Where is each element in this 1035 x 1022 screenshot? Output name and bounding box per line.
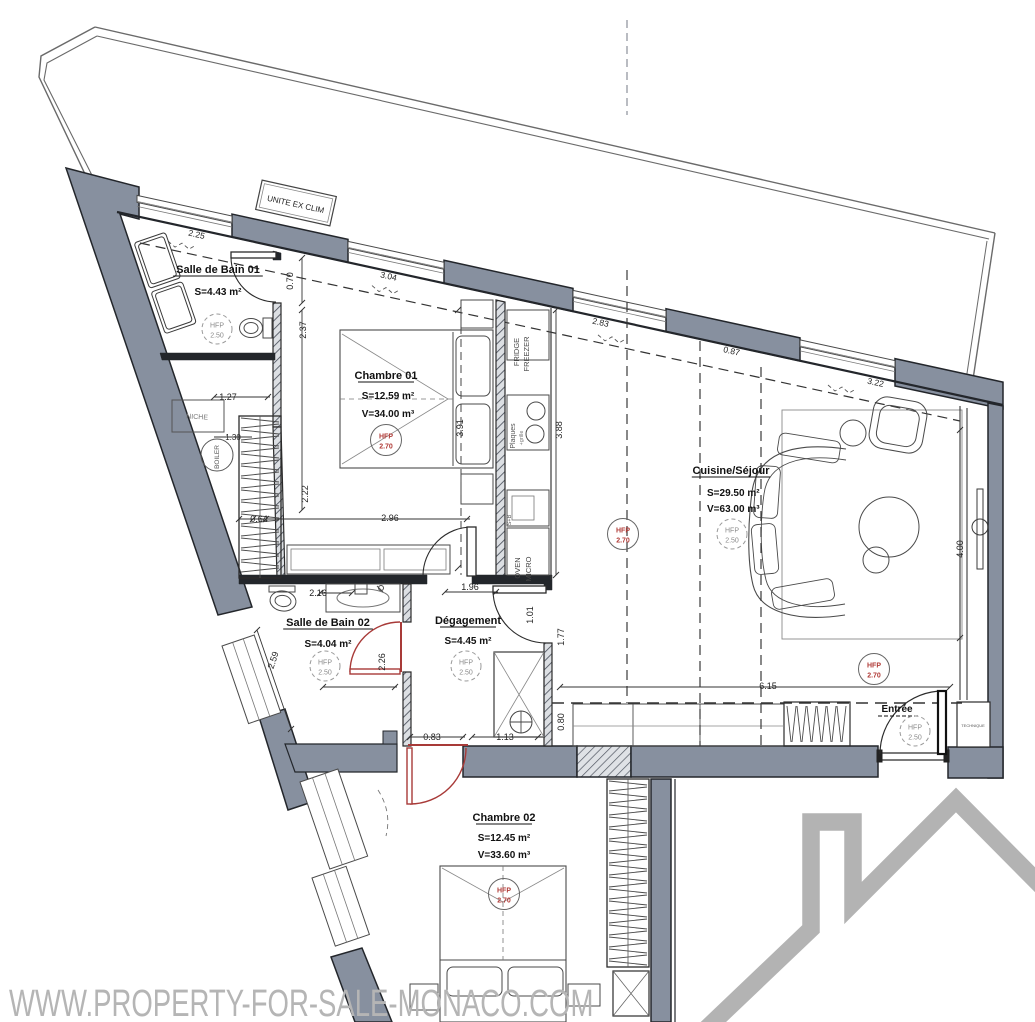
svg-text:2.70: 2.70	[497, 898, 511, 905]
svg-text:S=4.43 m²: S=4.43 m²	[195, 287, 243, 298]
svg-text:HFP: HFP	[908, 725, 922, 732]
svg-text:V=34.00 m³: V=34.00 m³	[362, 409, 415, 420]
svg-text:S=12.45 m²: S=12.45 m²	[478, 833, 531, 844]
svg-text:WWW.PROPERTY-FOR-SALE-MONACO.C: WWW.PROPERTY-FOR-SALE-MONACO.COM	[9, 983, 593, 1022]
svg-text:1.96: 1.96	[461, 582, 479, 592]
svg-text:Chambre 01: Chambre 01	[355, 370, 418, 382]
svg-text:Cuisine/Séjour: Cuisine/Séjour	[692, 465, 770, 477]
svg-text:OVEN: OVEN	[513, 557, 522, 578]
svg-text:V=33.60 m³: V=33.60 m³	[478, 850, 531, 861]
svg-text:HFP: HFP	[867, 663, 881, 670]
svg-text:Salle de Bain 02: Salle de Bain 02	[286, 617, 370, 629]
svg-text:HFP: HFP	[497, 888, 511, 895]
svg-text:Chambre 02: Chambre 02	[473, 812, 536, 824]
svg-text:V=63.00 m³: V=63.00 m³	[707, 504, 760, 515]
svg-text:HFP: HFP	[725, 528, 739, 535]
svg-text:2.50: 2.50	[908, 735, 922, 742]
svg-text:S=29.50 m²: S=29.50 m²	[707, 488, 760, 499]
svg-text:3.88: 3.88	[554, 421, 564, 439]
svg-text:2.70: 2.70	[616, 538, 630, 545]
svg-text:2.50: 2.50	[725, 538, 739, 545]
svg-text:2.22: 2.22	[300, 485, 310, 503]
svg-text:HFP: HFP	[318, 660, 332, 667]
svg-text:2.26: 2.26	[377, 653, 387, 671]
svg-text:Plaques: Plaques	[510, 423, 517, 449]
svg-text:TECHNIQUE: TECHNIQUE	[961, 723, 985, 728]
svg-text:FREEZER: FREEZER	[522, 336, 531, 372]
svg-text:2.96: 2.96	[381, 513, 399, 523]
svg-text:2.50: 2.50	[459, 670, 473, 677]
svg-text:BOILER: BOILER	[214, 445, 221, 469]
svg-text:2.37: 2.37	[298, 321, 308, 339]
svg-text:2.50: 2.50	[318, 670, 332, 677]
svg-text:NICHE: NICHE	[186, 413, 208, 421]
svg-text:HFP: HFP	[616, 528, 630, 535]
svg-text:6.15: 6.15	[759, 681, 777, 691]
svg-text:0.80: 0.80	[556, 713, 566, 731]
svg-text:HFP: HFP	[459, 660, 473, 667]
svg-text:HFP: HFP	[379, 434, 393, 441]
svg-text:+grille: +grille	[519, 431, 525, 446]
svg-text:2.70: 2.70	[867, 673, 881, 680]
svg-text:1.77: 1.77	[556, 628, 566, 646]
svg-text:Dégagement: Dégagement	[435, 615, 501, 627]
svg-text:S=4.45 m²: S=4.45 m²	[445, 636, 493, 647]
svg-text:2.50: 2.50	[210, 333, 224, 340]
svg-text:FRIDGE: FRIDGE	[512, 338, 521, 366]
svg-text:S=12.59 m²: S=12.59 m²	[362, 391, 415, 402]
svg-text:0.70: 0.70	[285, 272, 295, 290]
svg-text:Entrée: Entrée	[881, 704, 913, 715]
svg-text:2.70: 2.70	[379, 444, 393, 451]
svg-text:3.91: 3.91	[455, 419, 465, 437]
svg-text:HFP: HFP	[210, 323, 224, 330]
svg-text:S+B: S+B	[507, 514, 513, 525]
svg-text:1.01: 1.01	[525, 606, 535, 624]
svg-text:Salle de Bain 01: Salle de Bain 01	[176, 264, 260, 276]
svg-text:S=4.04 m²: S=4.04 m²	[305, 639, 353, 650]
svg-text:MICRO: MICRO	[524, 556, 533, 581]
